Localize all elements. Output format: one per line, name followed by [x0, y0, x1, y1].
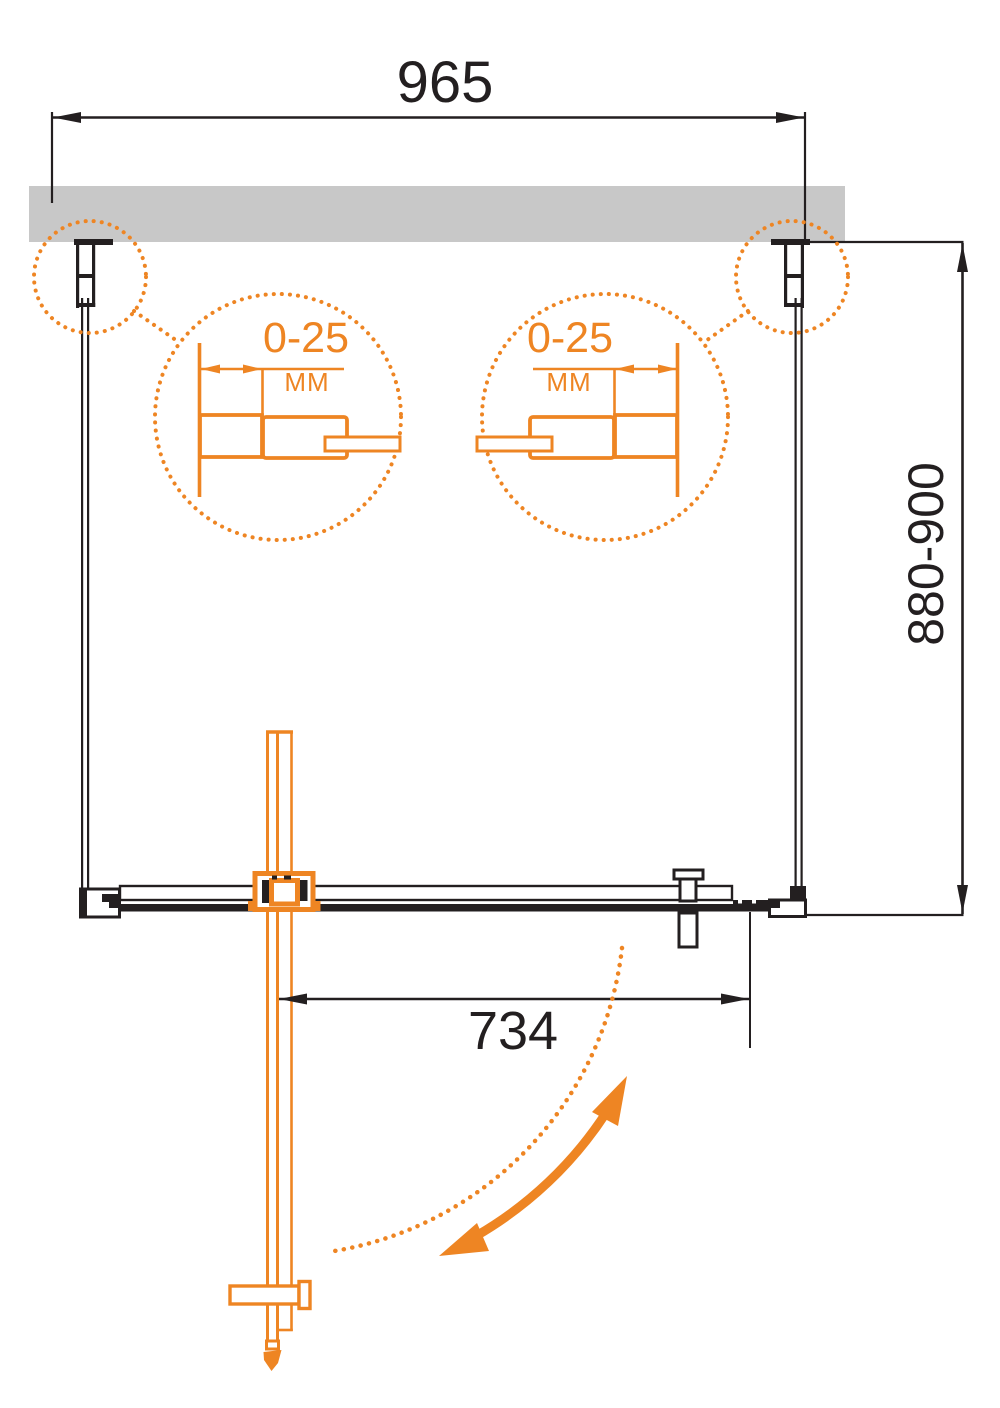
right-adjustment-range-value: 0-25: [510, 317, 630, 360]
bottom-track: [84, 904, 768, 912]
installation-diagram: 965 880-900 734 0-25 MM 0-25 MM: [0, 0, 1000, 1408]
left-glass-panel: [81, 298, 89, 889]
pivot-carriage: [248, 874, 321, 912]
right-glass-panel: [795, 298, 803, 887]
left-adjustment-range-value: 0-25: [246, 317, 366, 360]
swing-arc-dotted: [328, 948, 622, 1252]
right-wall-profile: [771, 239, 810, 308]
bottom-front-assembly: [79, 870, 806, 947]
door-closed-panel: [120, 886, 732, 900]
left-callout-connector: [134, 311, 180, 343]
right-corner-fitting: [733, 886, 806, 917]
door-bottom-tip: [264, 1350, 282, 1371]
door-swing-path: [328, 948, 627, 1256]
swing-arrow-curve: [476, 1113, 606, 1236]
door-width-value: 734: [413, 1004, 613, 1058]
right-adjustment-unit: MM: [521, 369, 617, 395]
callout-circles: [34, 221, 848, 540]
overall-width-value: 965: [345, 54, 545, 112]
left-adjustment-unit: MM: [257, 369, 357, 395]
right-callout-connector: [703, 311, 748, 343]
left-wall-profile: [74, 239, 113, 308]
door-open-panel: [230, 731, 310, 1371]
installation-height-value: 880-900: [901, 434, 955, 674]
left-corner-fitting: [79, 888, 120, 918]
door-handle-open: [230, 1282, 310, 1309]
wall-section: [29, 186, 845, 242]
diagram-linework: [0, 0, 1000, 1408]
door-bottom-seal: [267, 1341, 279, 1349]
